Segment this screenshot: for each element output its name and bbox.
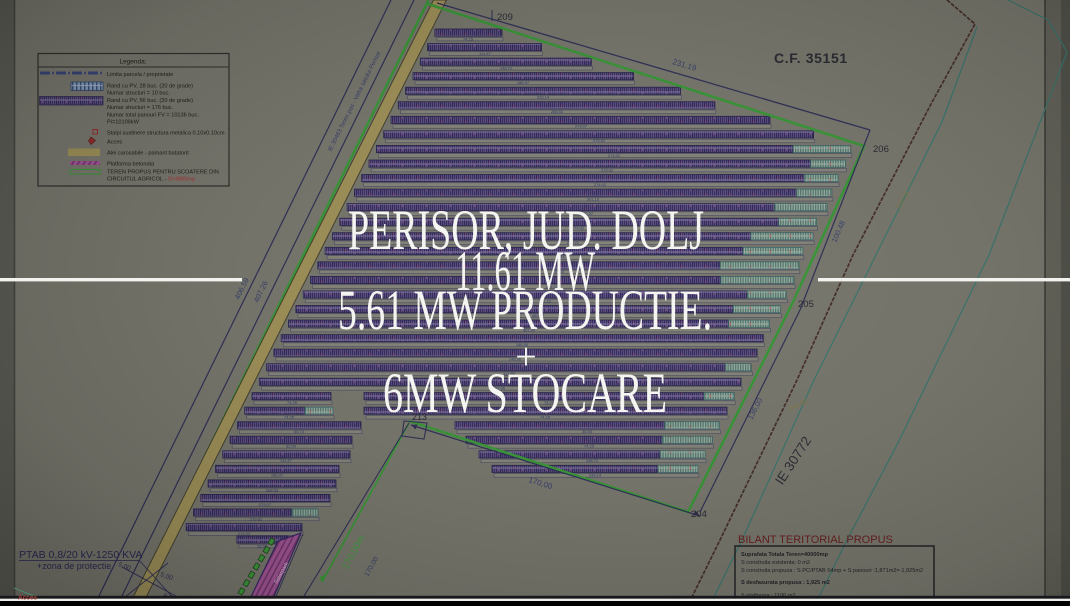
svg-text:Acces: Acces (18, 595, 38, 602)
svg-text:6MW STOCARE: 6MW STOCARE (383, 362, 667, 425)
svg-text:5.61 MW PRODUCTIE.: 5.61 MW PRODUCTIE. (338, 279, 712, 342)
